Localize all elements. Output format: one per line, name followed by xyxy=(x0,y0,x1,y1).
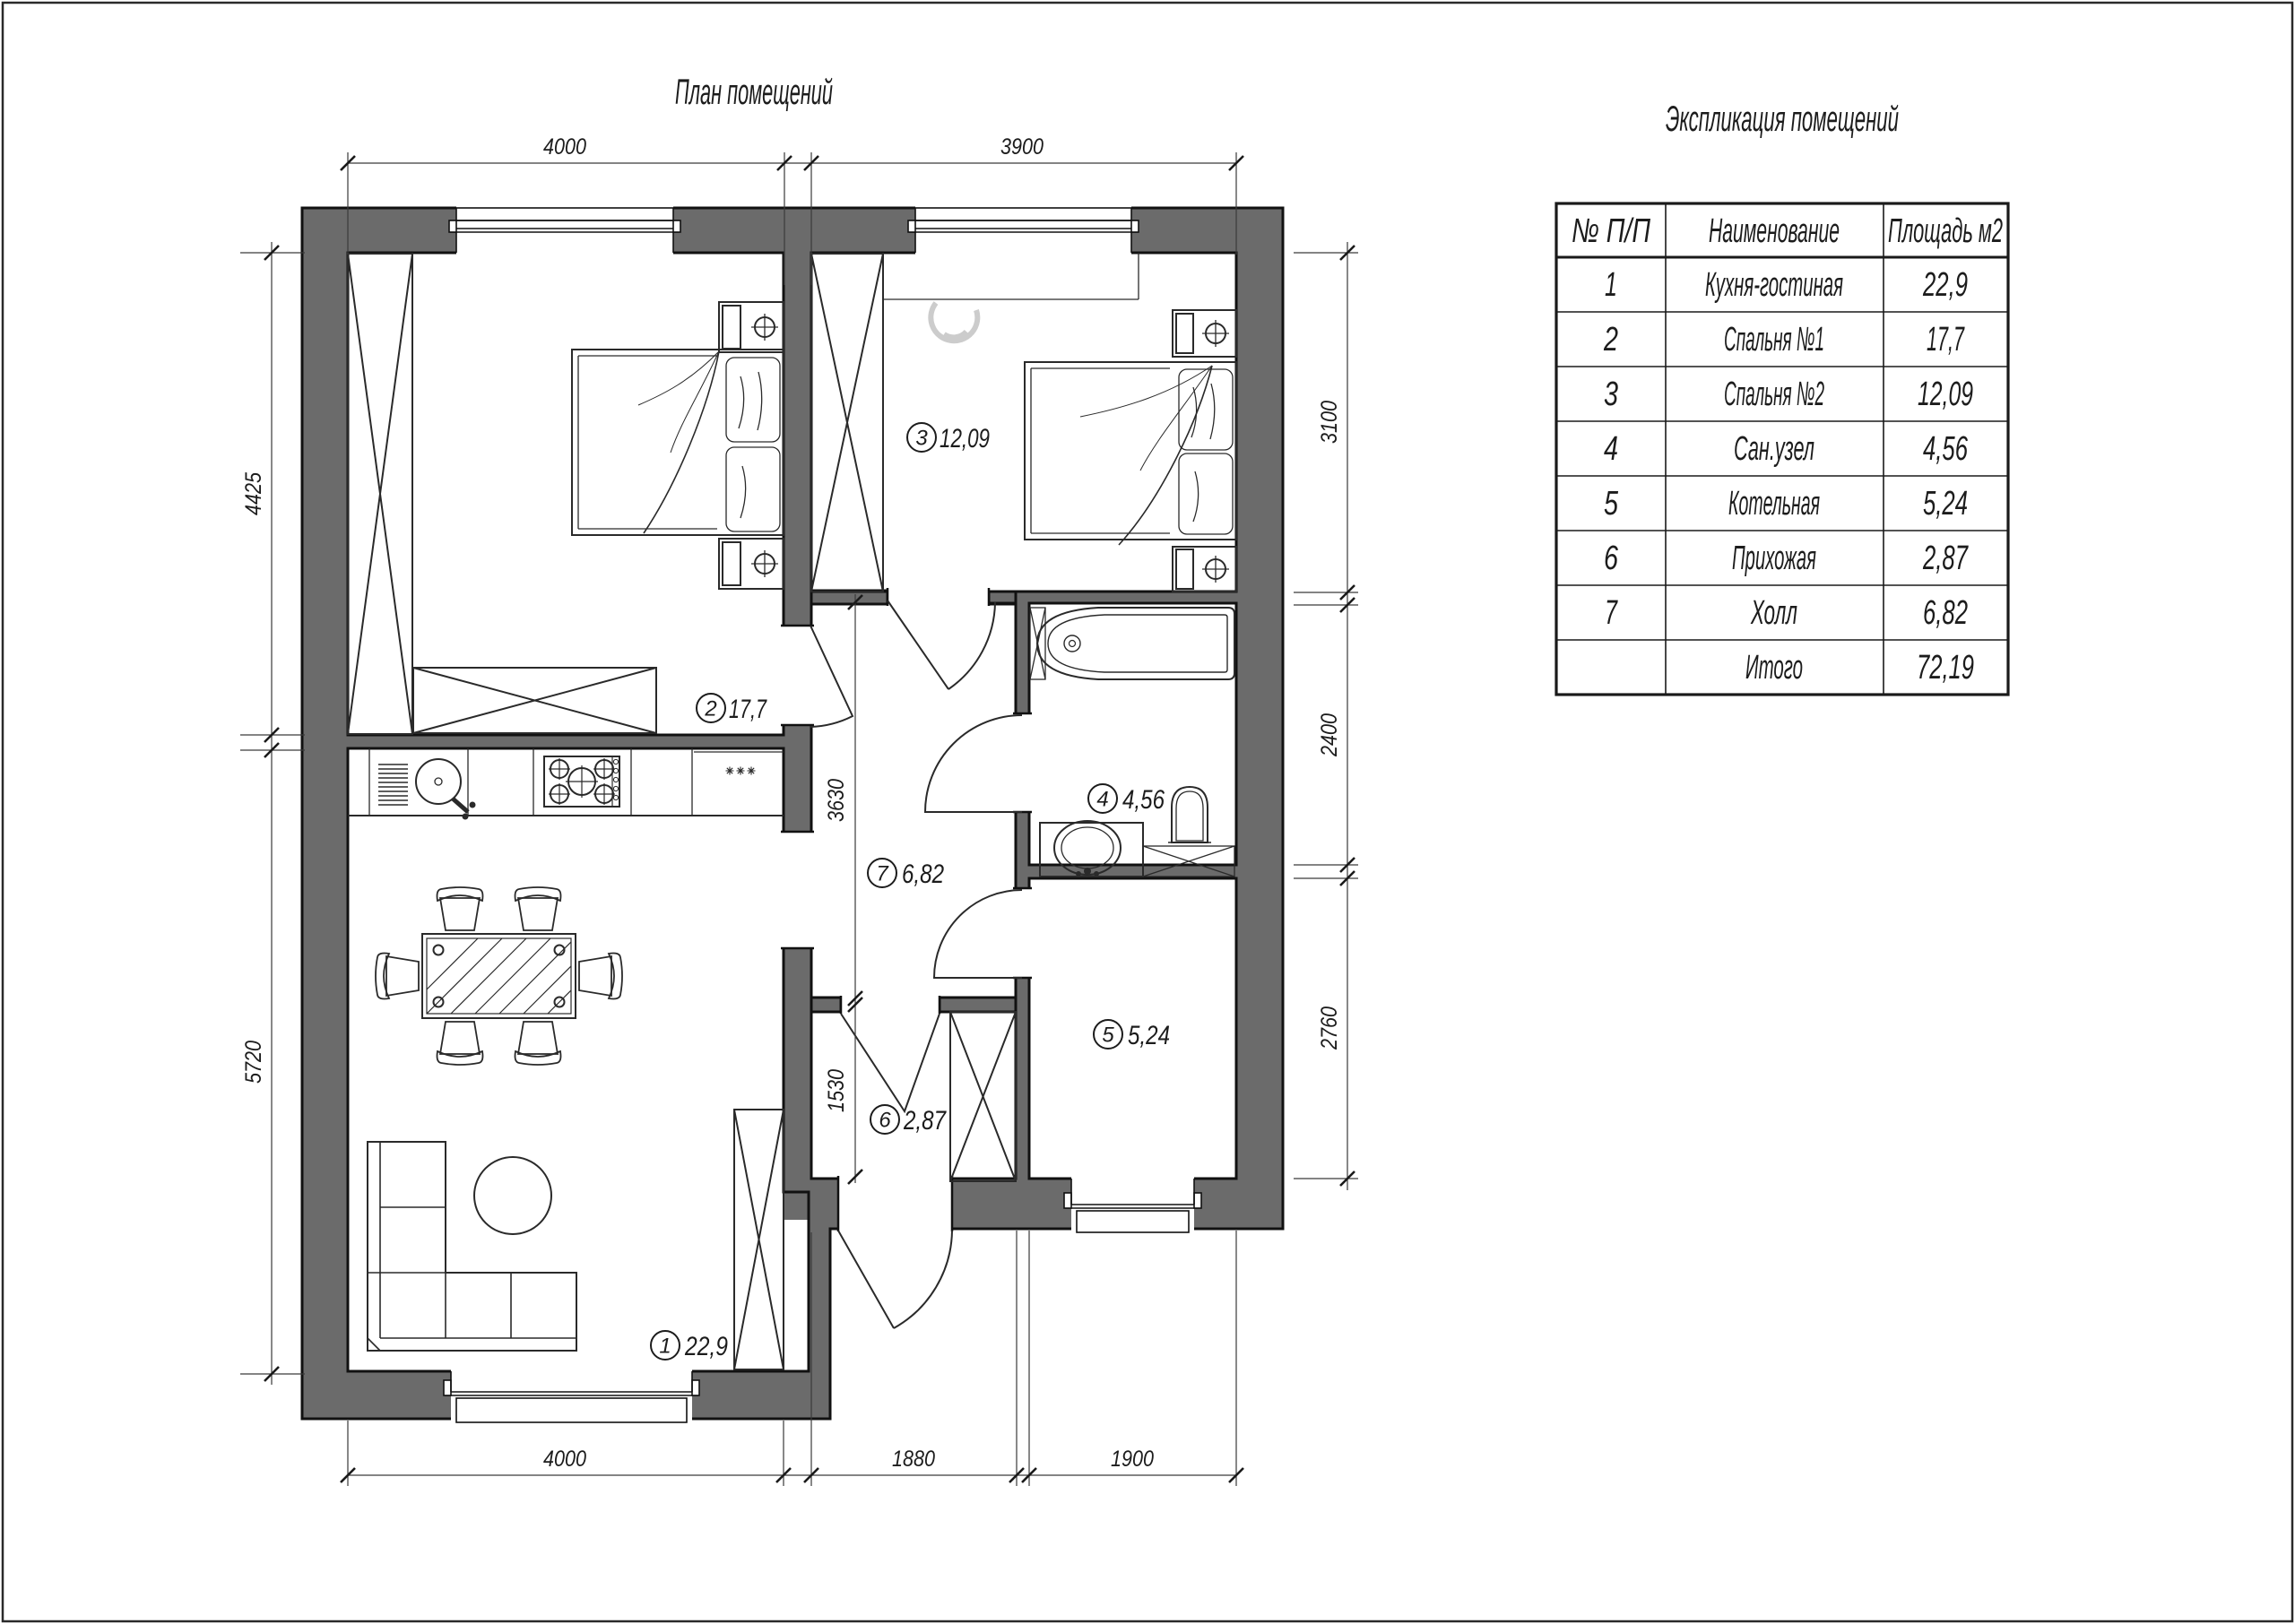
svg-text:3900: 3900 xyxy=(1000,134,1044,160)
svg-text:План помещений: План помещений xyxy=(675,73,833,112)
svg-text:3630: 3630 xyxy=(824,779,849,822)
svg-text:Холл: Холл xyxy=(1750,594,1797,632)
svg-text:2400: 2400 xyxy=(1317,713,1342,757)
svg-text:4,56: 4,56 xyxy=(1122,785,1165,815)
svg-text:12,09: 12,09 xyxy=(1918,376,1973,413)
svg-text:5: 5 xyxy=(1604,485,1619,523)
svg-text:17,7: 17,7 xyxy=(1927,321,1965,358)
svg-text:6: 6 xyxy=(1604,540,1619,577)
svg-text:4000: 4000 xyxy=(543,134,586,160)
svg-text:22,9: 22,9 xyxy=(1922,266,1968,304)
svg-text:Спальня №2: Спальня №2 xyxy=(1724,376,1824,413)
svg-text:6,82: 6,82 xyxy=(902,860,944,889)
svg-text:2: 2 xyxy=(704,697,716,721)
svg-text:4: 4 xyxy=(1096,788,1108,812)
svg-text:5: 5 xyxy=(1102,1024,1114,1048)
svg-text:1: 1 xyxy=(659,1335,671,1359)
svg-text:Прихожая: Прихожая xyxy=(1732,540,1816,577)
svg-text:5,24: 5,24 xyxy=(1128,1021,1170,1050)
svg-text:4425: 4425 xyxy=(241,472,266,515)
svg-text:5720: 5720 xyxy=(241,1041,266,1084)
svg-text:1900: 1900 xyxy=(1111,1447,1154,1472)
svg-text:17,7: 17,7 xyxy=(729,695,767,724)
svg-text:Сан.узел: Сан.узел xyxy=(1734,430,1814,468)
svg-text:Спальня №1: Спальня №1 xyxy=(1724,321,1824,358)
svg-text:3100: 3100 xyxy=(1317,401,1342,444)
svg-text:4000: 4000 xyxy=(543,1447,586,1472)
svg-text:2760: 2760 xyxy=(1317,1006,1342,1050)
svg-text:5,24: 5,24 xyxy=(1923,485,1968,523)
svg-text:Котельная: Котельная xyxy=(1728,485,1820,523)
svg-text:1: 1 xyxy=(1605,266,1617,304)
svg-text:2: 2 xyxy=(1603,321,1618,358)
svg-text:7: 7 xyxy=(1605,594,1618,632)
svg-text:1530: 1530 xyxy=(824,1069,849,1112)
svg-text:Итого: Итого xyxy=(1745,649,1803,687)
svg-text:3: 3 xyxy=(915,427,928,451)
svg-text:6,82: 6,82 xyxy=(1923,594,1968,632)
svg-text:2,87: 2,87 xyxy=(1922,540,1969,577)
svg-text:6: 6 xyxy=(879,1109,891,1133)
svg-text:72,19: 72,19 xyxy=(1917,649,1974,687)
svg-text:12,09: 12,09 xyxy=(940,424,990,454)
svg-text:1880: 1880 xyxy=(892,1447,935,1472)
svg-text:Наименование: Наименование xyxy=(1709,212,1840,250)
svg-text:22,9: 22,9 xyxy=(684,1332,728,1361)
svg-text:Площадь м2: Площадь м2 xyxy=(1888,212,2003,250)
svg-text:7: 7 xyxy=(876,862,889,886)
svg-text:2,87: 2,87 xyxy=(903,1106,947,1136)
svg-text:4,56: 4,56 xyxy=(1923,430,1969,468)
svg-text:Кухня-гостиная: Кухня-гостиная xyxy=(1705,266,1843,304)
svg-text:3: 3 xyxy=(1604,376,1618,413)
svg-text:4: 4 xyxy=(1604,430,1618,468)
svg-text:Экспликация помещений: Экспликация помещений xyxy=(1666,99,1899,139)
svg-text:№ П/П: № П/П xyxy=(1572,212,1650,250)
